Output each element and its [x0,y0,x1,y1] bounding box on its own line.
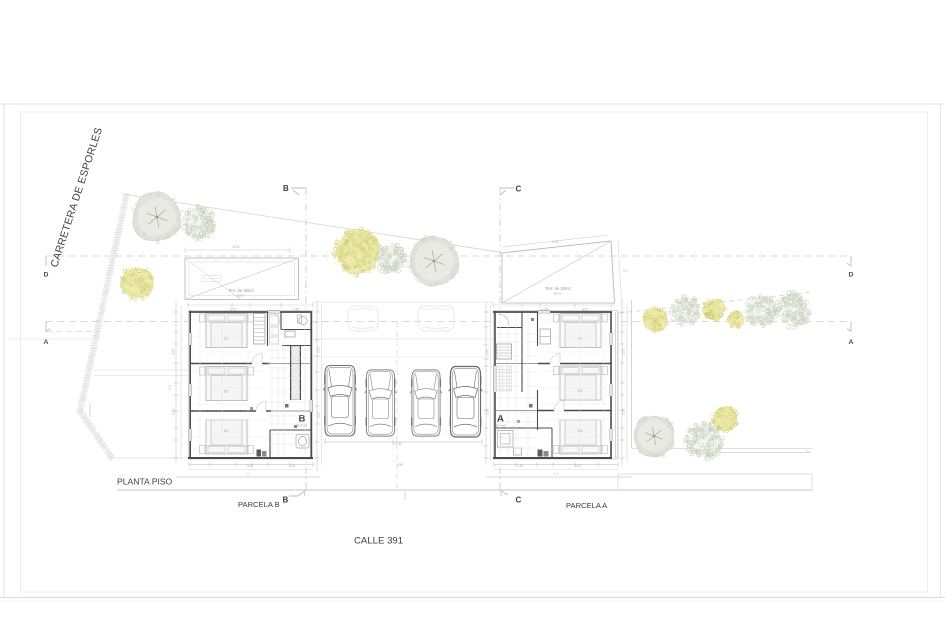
svg-text:4.20: 4.20 [582,308,588,312]
svg-text:3.10: 3.10 [247,464,253,468]
svg-text:3.55: 3.55 [486,349,490,355]
svg-text:4.20: 4.20 [230,308,236,312]
svg-text:3.2: 3.2 [168,385,172,390]
svg-text:1.90: 1.90 [542,308,548,312]
svg-text:2.1: 2.1 [623,269,628,273]
svg-text:D: D [44,272,49,279]
svg-text:D3: D3 [224,429,228,433]
svg-text:PARCELA A: PARCELA A [566,501,608,510]
svg-text:Terr. de 30m2: Terr. de 30m2 [545,286,571,291]
svg-text:C: C [516,496,522,505]
svg-text:3.25: 3.25 [622,409,626,415]
svg-text:4.15: 4.15 [233,245,240,249]
svg-text:B: B [283,496,289,505]
svg-text:1.45: 1.45 [517,464,523,468]
svg-text:CALLE 391: CALLE 391 [354,536,403,547]
svg-text:3.25: 3.25 [172,409,176,415]
svg-text:1.90: 1.90 [293,308,299,312]
svg-text:12.30: 12.30 [394,442,402,446]
svg-text:95.3 m2: 95.3 m2 [495,424,506,428]
svg-text:A: A [849,339,854,346]
svg-text:D2: D2 [224,390,228,394]
svg-text:PARCELA B: PARCELA B [238,500,280,509]
svg-text:B: B [283,184,289,193]
svg-text:3.55: 3.55 [317,347,321,353]
svg-text:7.7: 7.7 [246,473,251,477]
svg-text:7.7: 7.7 [554,473,559,477]
svg-text:C: C [516,185,522,194]
svg-text:3.10: 3.10 [575,464,581,468]
svg-text:1.45: 1.45 [289,464,295,468]
svg-text:3.25: 3.25 [486,409,490,415]
svg-text:Terr. de 30m2: Terr. de 30m2 [228,288,254,293]
svg-text:4.50: 4.50 [397,463,404,467]
svg-text:PLANTA PISO: PLANTA PISO [117,477,173,487]
svg-text:A: A [44,339,49,346]
svg-text:3.55: 3.55 [622,349,626,355]
svg-text:aprox.: aprox. [237,294,246,298]
svg-text:4.15: 4.15 [552,240,559,244]
svg-text:D: D [849,272,854,279]
svg-text:3.25: 3.25 [317,412,321,418]
svg-text:3.55: 3.55 [172,349,176,355]
svg-text:aprox.: aprox. [554,292,563,296]
